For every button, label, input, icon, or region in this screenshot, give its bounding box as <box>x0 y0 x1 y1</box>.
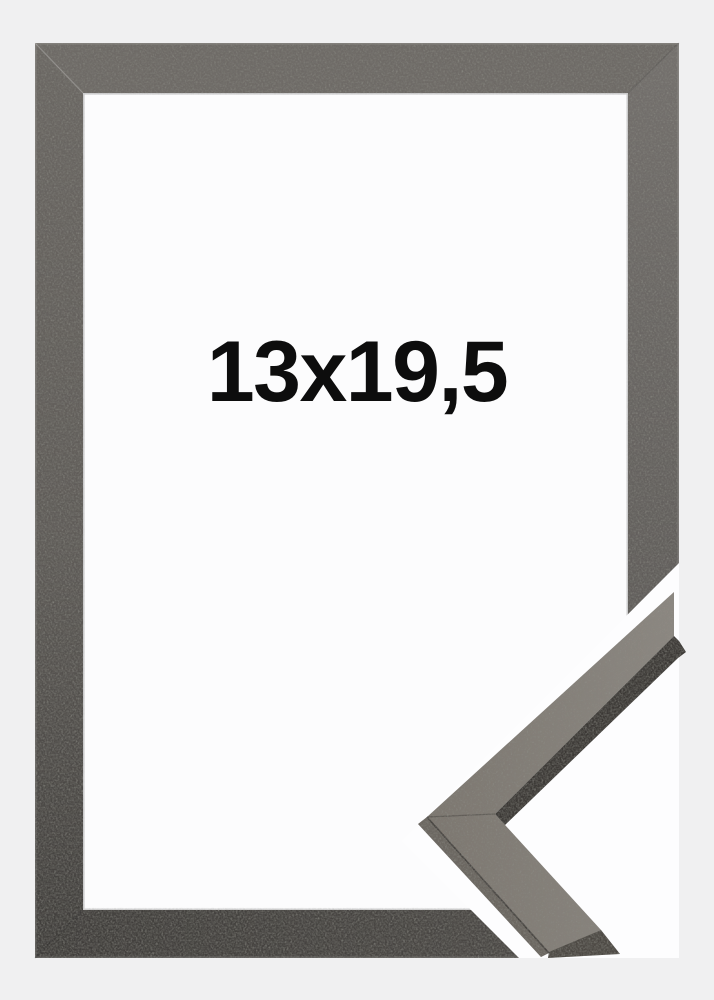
product-photo: 13x19,5 <box>0 0 714 1000</box>
frame-top-bar <box>35 43 679 93</box>
frame-left-bar-shading <box>35 43 83 958</box>
frame-product-image: 13x19,5 <box>0 0 714 1000</box>
size-label: 13x19,5 <box>207 324 507 420</box>
